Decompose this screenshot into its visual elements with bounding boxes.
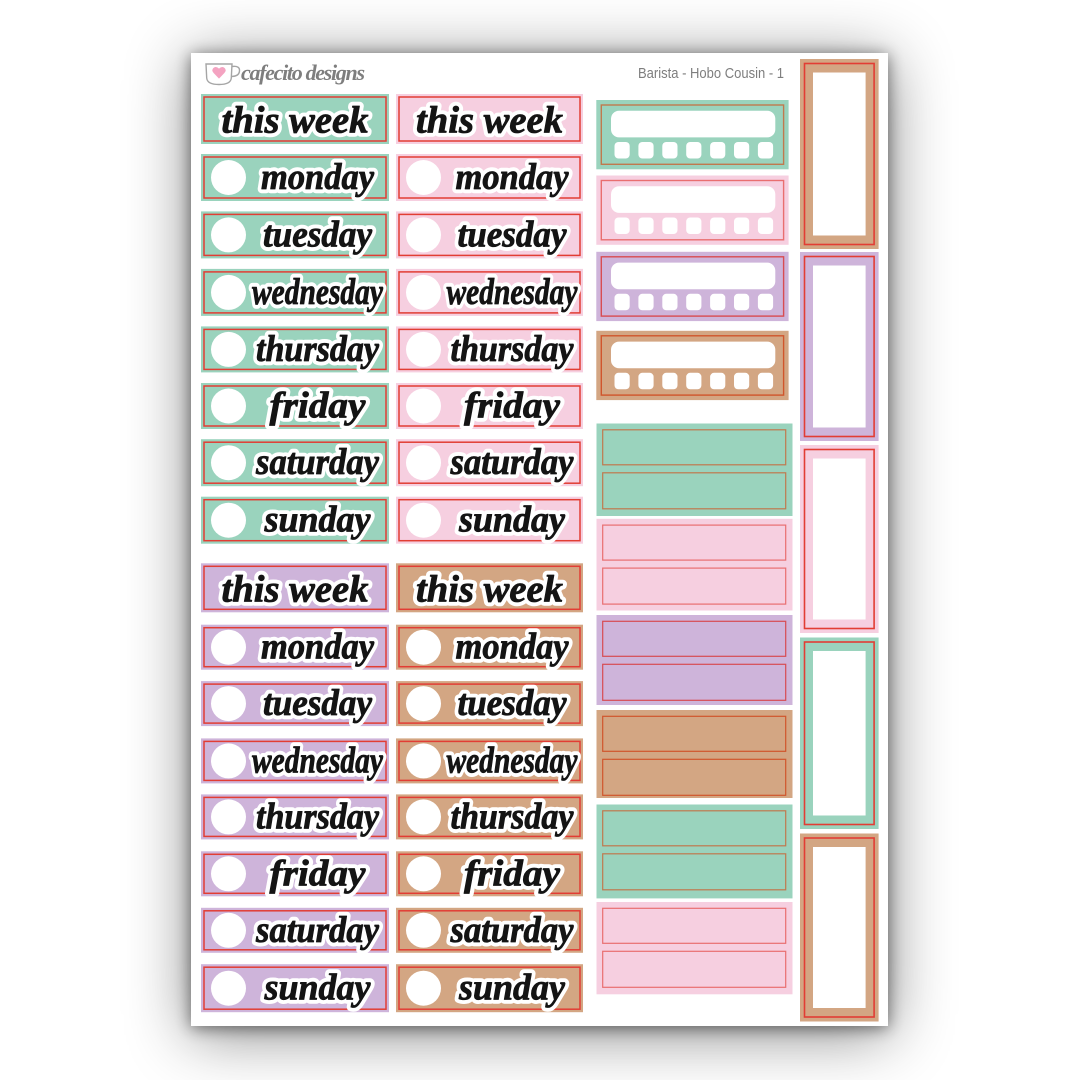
- svg-text:tuesday: tuesday: [458, 214, 568, 255]
- svg-text:saturday: saturday: [255, 442, 379, 483]
- svg-text:sunday: sunday: [264, 968, 372, 1009]
- svg-text:friday: friday: [270, 386, 367, 427]
- svg-text:wednesday: wednesday: [252, 272, 383, 313]
- svg-text:wednesday: wednesday: [252, 740, 383, 781]
- svg-text:cafecito designs: cafecito designs: [241, 60, 365, 85]
- svg-text:saturday: saturday: [450, 910, 574, 951]
- svg-text:thursday: thursday: [256, 796, 380, 837]
- svg-text:monday: monday: [261, 627, 375, 668]
- svg-text:tuesday: tuesday: [263, 214, 373, 255]
- svg-text:friday: friday: [270, 853, 367, 894]
- svg-text:this week: this week: [222, 568, 369, 610]
- svg-text:Barista - Hobo Cousin - 1: Barista - Hobo Cousin - 1: [638, 65, 784, 82]
- svg-text:sunday: sunday: [458, 968, 566, 1009]
- svg-text:monday: monday: [456, 627, 570, 668]
- svg-text:thursday: thursday: [256, 329, 380, 370]
- svg-text:sunday: sunday: [264, 500, 372, 541]
- svg-text:sunday: sunday: [458, 500, 566, 541]
- svg-text:monday: monday: [456, 157, 570, 198]
- svg-text:this week: this week: [222, 100, 369, 142]
- svg-text:tuesday: tuesday: [263, 683, 373, 724]
- svg-text:wednesday: wednesday: [447, 272, 578, 313]
- svg-text:this week: this week: [416, 100, 563, 142]
- svg-text:thursday: thursday: [451, 796, 575, 837]
- svg-text:thursday: thursday: [451, 329, 575, 370]
- svg-text:tuesday: tuesday: [458, 683, 568, 724]
- svg-text:monday: monday: [261, 157, 375, 198]
- svg-text:friday: friday: [464, 386, 561, 427]
- svg-text:this week: this week: [416, 568, 563, 610]
- svg-text:friday: friday: [464, 853, 561, 894]
- svg-text:saturday: saturday: [450, 442, 574, 483]
- svg-text:saturday: saturday: [255, 910, 379, 951]
- svg-text:wednesday: wednesday: [447, 740, 578, 781]
